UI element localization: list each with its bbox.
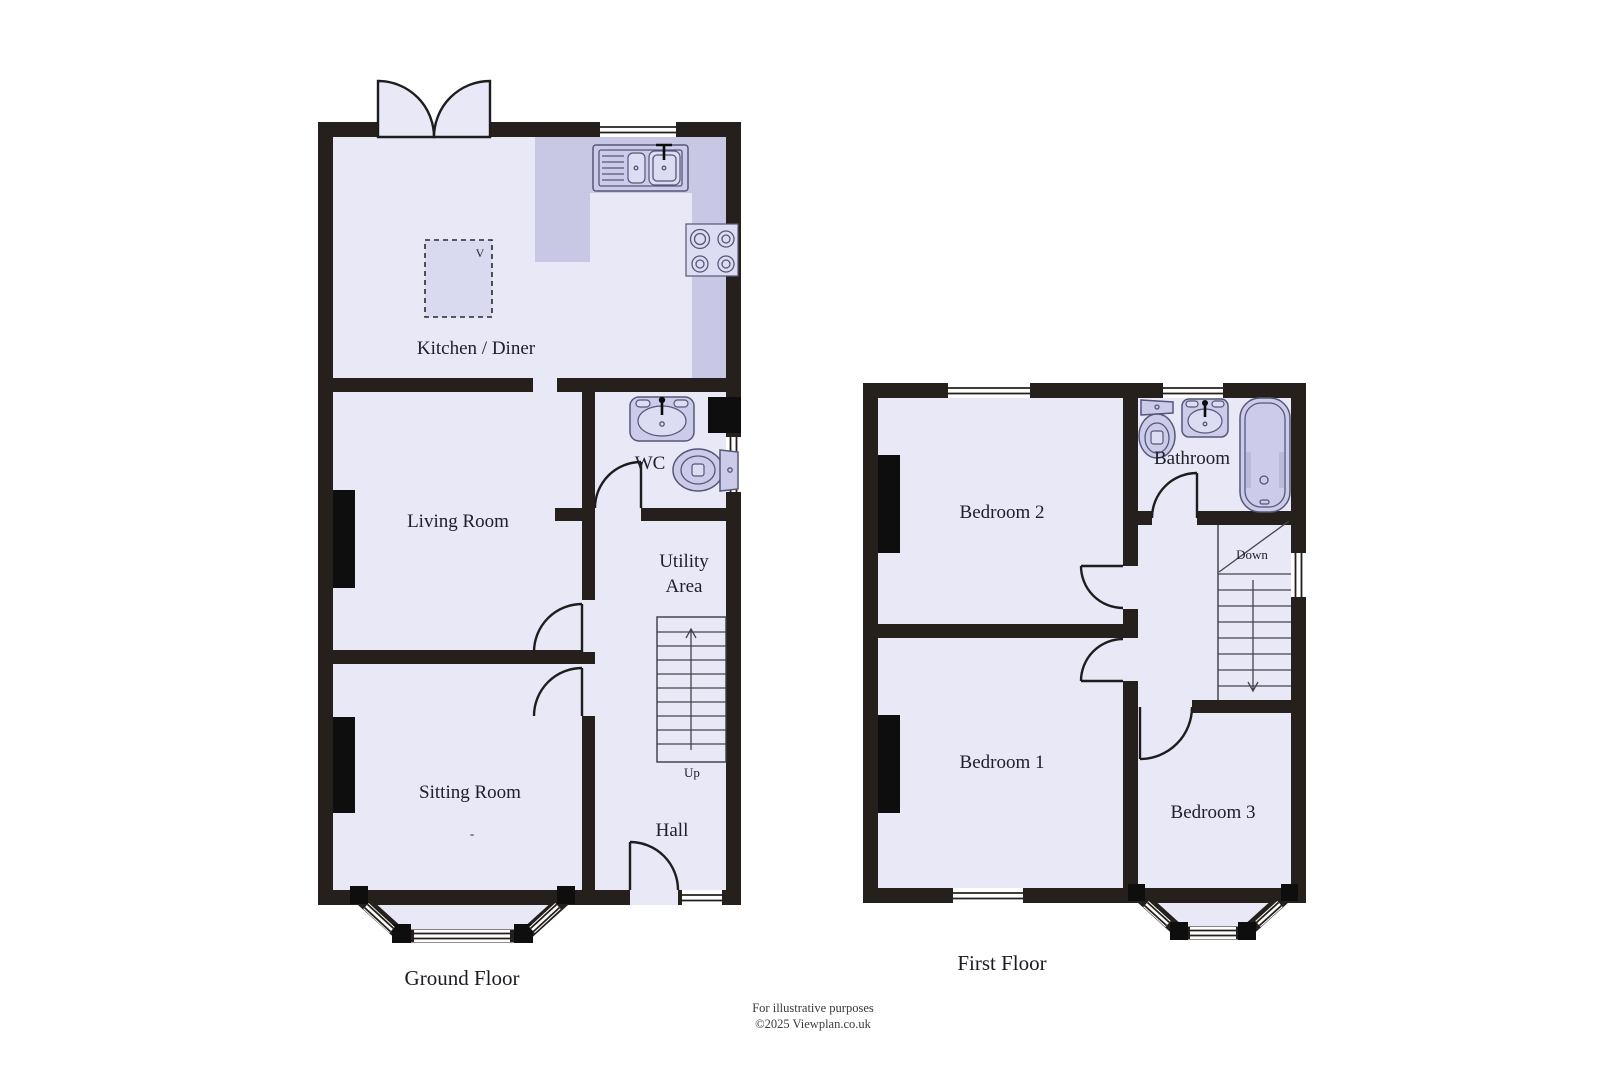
kitchen-window xyxy=(600,122,676,137)
chimney-breast xyxy=(333,490,355,588)
bedroom2-window xyxy=(948,383,1030,398)
chimney-breast xyxy=(333,717,355,813)
french-doors-icon xyxy=(378,81,490,137)
room-label-bedroom2: Bedroom 2 xyxy=(960,502,1045,523)
room-label-utility-line2: Area xyxy=(666,576,703,597)
chimney-breast xyxy=(708,397,741,433)
floorplan-page: V Kitchen / Diner Living Room xyxy=(0,0,1620,1080)
bath-icon xyxy=(1240,398,1290,512)
stairs-down-label: Down xyxy=(1236,547,1268,562)
hall-window xyxy=(682,890,722,905)
vent-label: V xyxy=(476,246,485,260)
landing-window xyxy=(1291,553,1306,597)
wc-toilet-icon xyxy=(673,449,738,491)
bathroom-window xyxy=(1163,383,1223,398)
vent-square: V xyxy=(425,240,492,317)
floorplan-canvas: V Kitchen / Diner Living Room xyxy=(0,0,1620,1080)
room-label-kitchen-diner: Kitchen / Diner xyxy=(417,338,536,359)
room-label-bedroom3: Bedroom 3 xyxy=(1171,802,1256,823)
room-label-sitting-room: Sitting Room xyxy=(419,782,521,803)
footer-disclaimer: For illustrative purposes xyxy=(752,1001,874,1015)
room-label-bedroom1: Bedroom 1 xyxy=(960,752,1045,773)
ground-floor-plan: V Kitchen / Diner Living Room xyxy=(318,81,741,990)
footer: For illustrative purposes ©2025 Viewplan… xyxy=(752,1001,874,1031)
kitchen-sink-icon xyxy=(593,145,688,191)
room-label-living-room: Living Room xyxy=(407,511,509,532)
room-label-wc: WC xyxy=(635,453,666,474)
room-label-bathroom: Bathroom xyxy=(1154,448,1230,469)
fireplace-mark: - xyxy=(470,826,474,841)
bathroom-basin-icon xyxy=(1182,399,1228,437)
stairs-up-label: Up xyxy=(684,765,700,780)
first-floor-plan: Bedroom 2 Bathroom Bedroom 1 Bedroom 3 D… xyxy=(863,383,1306,975)
chimney-breast xyxy=(878,715,900,813)
room-label-utility-line1: Utility xyxy=(659,551,709,572)
floor-title-ground: Ground Floor xyxy=(405,966,520,990)
floor-title-first: First Floor xyxy=(957,951,1046,975)
hob-icon xyxy=(686,224,738,276)
footer-copyright: ©2025 Viewplan.co.uk xyxy=(755,1017,872,1031)
wc-basin-icon xyxy=(630,397,694,441)
bedroom1-window xyxy=(953,888,1023,903)
chimney-breast xyxy=(878,455,900,553)
room-label-hall: Hall xyxy=(656,820,689,841)
